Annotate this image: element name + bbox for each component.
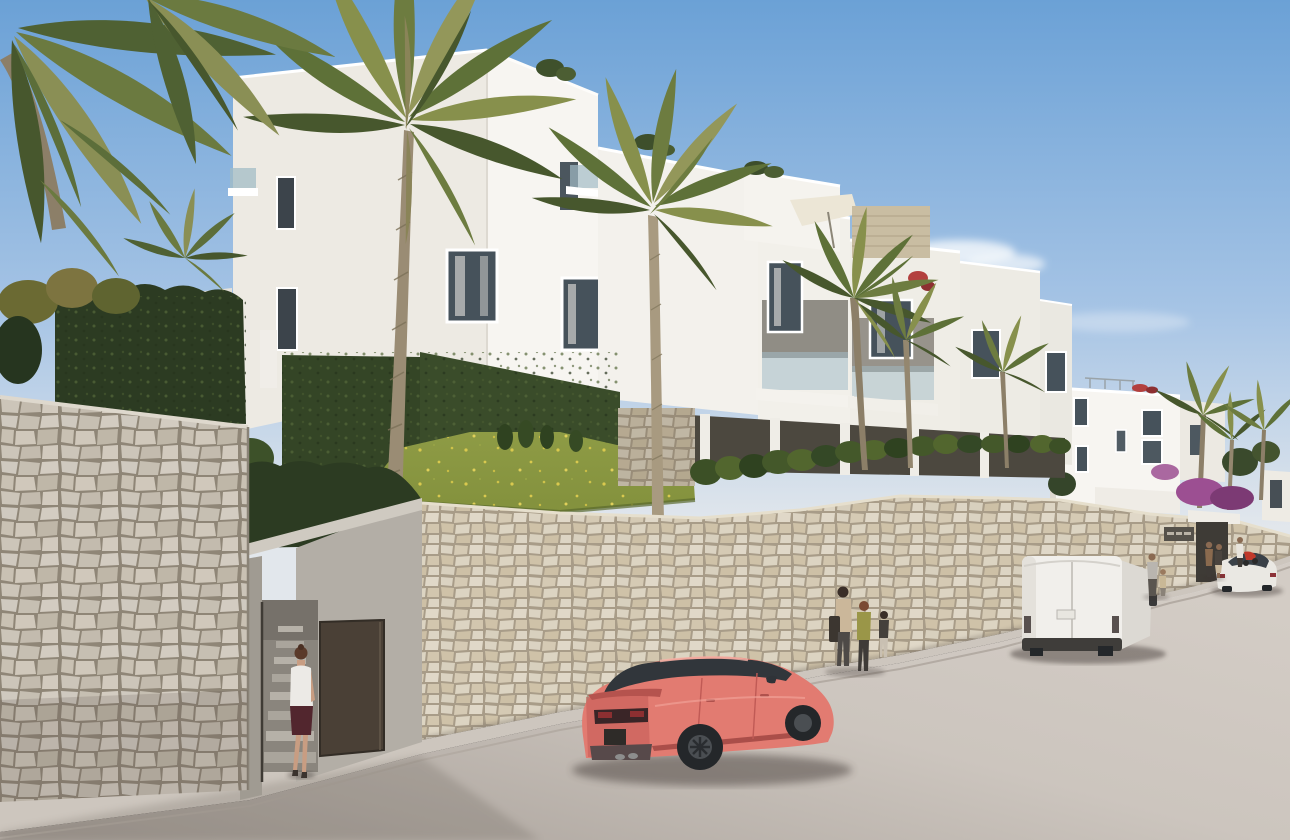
woman-neck bbox=[297, 660, 305, 666]
teen-top bbox=[857, 612, 871, 640]
person-torso bbox=[1205, 549, 1213, 566]
teen-hair bbox=[859, 601, 869, 611]
child-pants bbox=[880, 638, 888, 657]
woman-hair bbox=[838, 587, 849, 598]
woman-blouse bbox=[290, 666, 313, 707]
scene-canvas bbox=[0, 0, 1290, 840]
woman-shoe bbox=[292, 770, 298, 776]
wall-lower-shade bbox=[0, 690, 248, 802]
person-legs bbox=[1206, 566, 1212, 577]
person-head bbox=[1216, 544, 1222, 550]
child-legs bbox=[1160, 588, 1166, 596]
van-taillight bbox=[1024, 616, 1031, 633]
pedestrian-entrance bbox=[238, 461, 422, 800]
car-exhaust bbox=[628, 753, 638, 759]
child-torso bbox=[1159, 576, 1166, 588]
hedge-texture bbox=[55, 296, 246, 424]
van-wheel bbox=[1030, 648, 1043, 656]
entrance-gate bbox=[320, 620, 384, 756]
woman-skirt bbox=[290, 706, 313, 735]
van-taillight bbox=[1112, 616, 1119, 633]
person-head bbox=[1206, 542, 1212, 548]
car-exhaust bbox=[615, 754, 625, 760]
white-delivery-van bbox=[1010, 556, 1166, 664]
stair-recess-shadow bbox=[262, 600, 318, 640]
child-top bbox=[879, 620, 889, 638]
child-hair bbox=[880, 611, 888, 619]
person-torso bbox=[1215, 551, 1222, 565]
window bbox=[1270, 480, 1282, 508]
sedan-wheel bbox=[1222, 586, 1232, 592]
scooter-wheel bbox=[1252, 558, 1258, 564]
person-head bbox=[1148, 553, 1155, 560]
sedan-taillight bbox=[1270, 573, 1276, 577]
glass-railing bbox=[762, 352, 848, 390]
sign-text-marks bbox=[1167, 532, 1191, 535]
person-legs bbox=[1148, 579, 1157, 596]
woman-shoe bbox=[301, 772, 307, 778]
person-legs bbox=[1217, 573, 1220, 578]
corner-glass-balcony bbox=[228, 168, 258, 196]
glass-railing bbox=[852, 366, 934, 400]
render-scene bbox=[0, 0, 1290, 840]
van-side bbox=[1120, 560, 1152, 650]
person-head bbox=[1237, 537, 1243, 543]
foreground-stone-wall bbox=[0, 396, 248, 802]
car-taillight bbox=[630, 711, 644, 717]
person-skirt bbox=[1215, 565, 1222, 573]
child-head bbox=[1160, 569, 1166, 575]
car-rim-spokes bbox=[690, 737, 710, 757]
sedan-wheel bbox=[1262, 585, 1272, 591]
van-license-plate bbox=[1057, 610, 1075, 619]
woman-hair-bun bbox=[298, 644, 304, 650]
car-license-plate bbox=[604, 729, 626, 745]
car-front-rim bbox=[794, 714, 812, 732]
scooter-wheel bbox=[1243, 560, 1249, 566]
person-torso bbox=[1236, 544, 1243, 558]
person-legs bbox=[1237, 558, 1243, 567]
van-wheel bbox=[1098, 646, 1113, 656]
person-torso bbox=[1147, 562, 1158, 579]
van-rear-shade bbox=[1022, 556, 1036, 650]
car-taillight bbox=[598, 712, 612, 718]
